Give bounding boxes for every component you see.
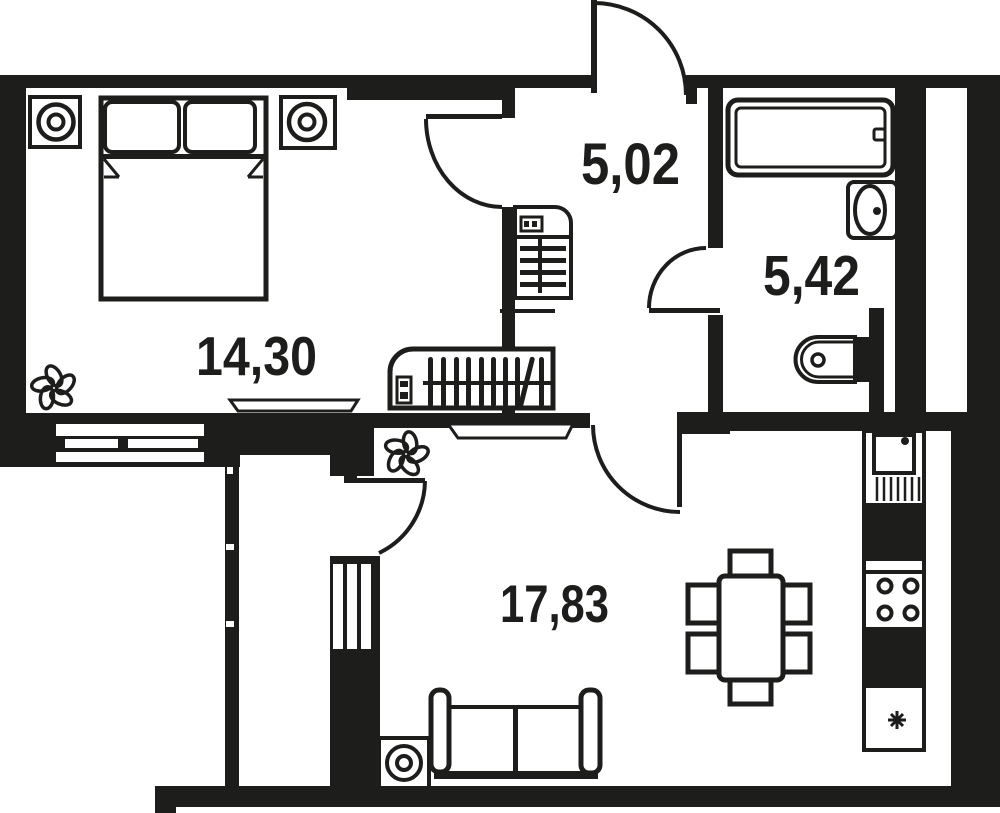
svg-text:5,42: 5,42	[763, 244, 860, 308]
svg-text:17,83: 17,83	[500, 575, 609, 634]
svg-text:5,02: 5,02	[581, 132, 680, 197]
svg-text:14,30: 14,30	[196, 325, 317, 387]
